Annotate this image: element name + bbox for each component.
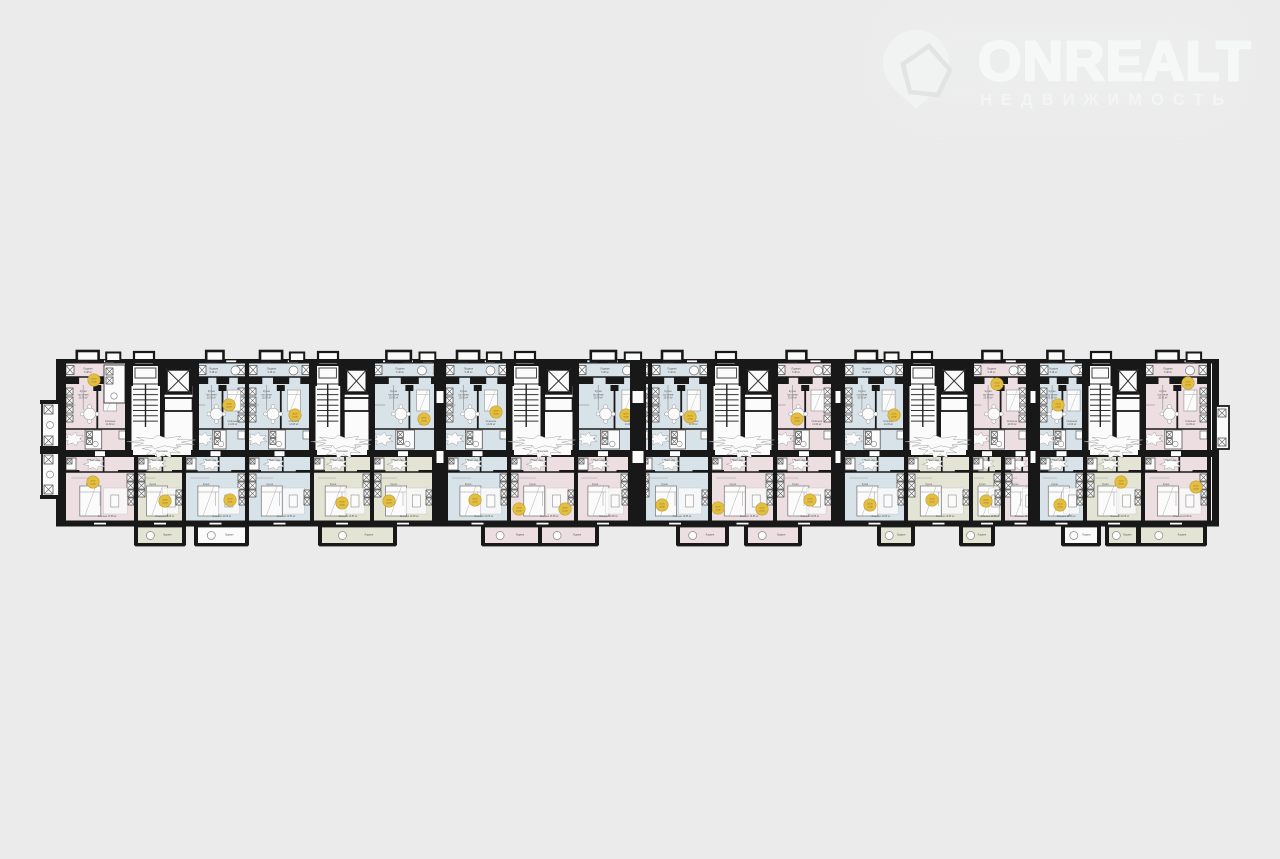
svg-text:Прихожая: Прихожая — [1165, 459, 1177, 462]
svg-text:24.25: 24.25 — [292, 413, 298, 415]
svg-text:Прихожая: Прихожая — [1052, 459, 1064, 462]
svg-text:24.36: 24.36 — [929, 502, 935, 504]
svg-text:Спальня 16.85 м²: Спальня 16.85 м² — [673, 515, 692, 518]
svg-text:Спальня 16.85 м²: Спальня 16.85 м² — [981, 515, 1000, 518]
svg-text:Лоджия: Лоджия — [464, 367, 474, 371]
svg-text:Кухня: Кухня — [862, 483, 869, 486]
svg-text:Прихожая: Прихожая — [1108, 450, 1120, 453]
svg-text:Прихожая: Прихожая — [933, 450, 945, 453]
svg-text:5.48 м²: 5.48 м² — [668, 371, 676, 374]
svg-text:Прихожая: Прихожая — [151, 459, 163, 462]
svg-text:Лоджия: Лоджия — [1082, 534, 1091, 537]
svg-text:Спальня 16.85 м²: Спальня 16.85 м² — [212, 515, 231, 518]
svg-text:14.09 м²: 14.09 м² — [1186, 423, 1195, 426]
svg-text:24.36: 24.36 — [715, 510, 721, 512]
svg-text:Спальня 16.85 м²: Спальня 16.85 м² — [540, 515, 559, 518]
svg-text:Спальня 16.85 м²: Спальня 16.85 м² — [339, 515, 358, 518]
svg-text:24.36: 24.36 — [659, 507, 665, 509]
svg-text:Прихожая: Прихожая — [467, 459, 479, 462]
svg-text:24.25: 24.25 — [1118, 480, 1124, 482]
svg-text:Кухня: Кухня — [529, 483, 536, 486]
svg-text:24.36: 24.36 — [226, 407, 232, 409]
svg-text:5.48 м²: 5.48 м² — [1050, 371, 1058, 374]
svg-text:Прихожая: Прихожая — [593, 459, 605, 462]
svg-text:24.36: 24.36 — [339, 505, 345, 507]
svg-text:24.36: 24.36 — [983, 503, 989, 505]
svg-text:Лоджия: Лоджия — [1123, 534, 1132, 537]
svg-text:24.25: 24.25 — [472, 498, 478, 500]
svg-text:Прихожая: Прихожая — [537, 450, 549, 453]
svg-text:5.48 м²: 5.48 м² — [1164, 371, 1172, 374]
svg-text:24.36: 24.36 — [794, 421, 800, 423]
svg-text:Лоджия: Лоджия — [897, 534, 906, 537]
svg-text:24.25: 24.25 — [562, 507, 568, 509]
svg-text:Прихожая: Прихожая — [156, 450, 168, 453]
svg-text:Лоджия: Лоджия — [1178, 534, 1187, 537]
svg-text:24.25: 24.25 — [759, 507, 765, 509]
svg-text:24.25: 24.25 — [929, 498, 935, 500]
svg-text:Прихожая: Прихожая — [732, 459, 744, 462]
svg-text:Прихожая: Прихожая — [1104, 459, 1116, 462]
svg-text:Прихожая: Прихожая — [928, 459, 940, 462]
svg-text:Лоджия: Лоджия — [667, 367, 677, 371]
svg-text:Спальня 16.85 м²: Спальня 16.85 м² — [871, 515, 890, 518]
svg-text:5.48 м²: 5.48 м² — [210, 371, 218, 374]
svg-text:Кухня: Кухня — [465, 483, 472, 486]
svg-text:24.25: 24.25 — [1185, 381, 1191, 383]
svg-text:Лоджия: Лоджия — [987, 367, 997, 371]
svg-text:24.25: 24.25 — [867, 503, 873, 505]
svg-text:24.25: 24.25 — [715, 506, 721, 508]
svg-text:ONREALT: ONREALT — [978, 29, 1252, 92]
svg-text:5.48 м²: 5.48 м² — [863, 371, 871, 374]
svg-text:24.25: 24.25 — [493, 410, 499, 412]
svg-text:24.25: 24.25 — [794, 417, 800, 419]
svg-text:14.09 м²: 14.09 м² — [289, 423, 298, 426]
svg-text:14.09 м²: 14.09 м² — [106, 423, 115, 426]
svg-text:14.09 м²: 14.09 м² — [884, 423, 893, 426]
svg-text:Спальня 16.85 м²: Спальня 16.85 м² — [1173, 515, 1192, 518]
svg-text:24.36: 24.36 — [1185, 385, 1191, 387]
svg-text:24.36: 24.36 — [472, 502, 478, 504]
svg-text:14.09 м²: 14.09 м² — [1067, 423, 1076, 426]
svg-text:24.25: 24.25 — [891, 413, 897, 415]
svg-text:Лоджия: Лоджия — [395, 367, 405, 371]
svg-text:Спальня 16.85 м²: Спальня 16.85 м² — [400, 515, 419, 518]
svg-text:24.36: 24.36 — [807, 502, 813, 504]
svg-text:Прихожая: Прихожая — [332, 459, 344, 462]
svg-text:24.36: 24.36 — [1057, 507, 1063, 509]
svg-text:24.25: 24.25 — [91, 378, 97, 380]
svg-text:Кухня: Кухня — [926, 483, 933, 486]
svg-text:Спальня 16.85 м²: Спальня 16.85 м² — [599, 515, 618, 518]
svg-text:5.48 м²: 5.48 м² — [601, 371, 609, 374]
svg-text:Лоджия: Лоджия — [706, 534, 715, 537]
svg-text:Спальня 16.85 м²: Спальня 16.85 м² — [936, 515, 955, 518]
svg-text:Спальня 16.85 м²: Спальня 16.85 м² — [1057, 515, 1076, 518]
svg-text:Прихожая: Прихожая — [205, 459, 217, 462]
svg-text:Кухня: Кухня — [792, 483, 799, 486]
svg-text:Лоджия: Лоджия — [267, 367, 277, 371]
svg-text:Лоджия: Лоджия — [83, 367, 93, 371]
svg-text:24.25: 24.25 — [659, 503, 665, 505]
svg-text:24.25: 24.25 — [339, 501, 345, 503]
svg-text:24.36: 24.36 — [386, 503, 392, 505]
svg-text:Кухня: Кухня — [592, 483, 599, 486]
svg-text:Кухня: Кухня — [661, 483, 668, 486]
svg-text:Прихожая: Прихожая — [392, 459, 404, 462]
svg-text:5.48 м²: 5.48 м² — [792, 371, 800, 374]
svg-text:24.25: 24.25 — [227, 498, 233, 500]
svg-text:24.36: 24.36 — [516, 511, 522, 513]
svg-text:Лоджия: Лоджия — [600, 367, 610, 371]
svg-text:5.48 м²: 5.48 м² — [84, 371, 92, 374]
svg-text:24.36: 24.36 — [687, 419, 693, 421]
svg-text:24.25: 24.25 — [1057, 503, 1063, 505]
svg-text:14.09 м²: 14.09 м² — [1007, 423, 1016, 426]
svg-text:Лоджия: Лоджия — [777, 534, 786, 537]
svg-text:Прихожая: Прихожая — [794, 459, 806, 462]
svg-text:14.09 м²: 14.09 м² — [486, 423, 495, 426]
svg-text:24.25: 24.25 — [90, 480, 96, 482]
svg-text:Лоджия: Лоджия — [791, 367, 801, 371]
svg-text:Лоджия: Лоджия — [163, 534, 172, 537]
svg-text:24.36: 24.36 — [227, 502, 233, 504]
svg-text:Лоджия: Лоджия — [978, 534, 987, 537]
svg-text:Прихожая: Прихожая — [532, 459, 544, 462]
svg-text:Прихожая: Прихожая — [269, 459, 281, 462]
svg-text:24.25: 24.25 — [226, 403, 232, 405]
svg-text:24.36: 24.36 — [162, 503, 168, 505]
svg-text:Лоджия: Лоджия — [365, 534, 374, 537]
svg-text:Лоджия: Лоджия — [1049, 367, 1059, 371]
svg-text:Кухня: Кухня — [1051, 483, 1058, 486]
svg-text:Спальня 16.85 м²: Спальня 16.85 м² — [800, 515, 819, 518]
svg-text:24.36: 24.36 — [421, 421, 427, 423]
svg-text:24.36: 24.36 — [91, 382, 97, 384]
svg-text:Кухня: Кухня — [330, 483, 337, 486]
svg-text:14.09 м²: 14.09 м² — [228, 423, 237, 426]
svg-text:24.25: 24.25 — [162, 499, 168, 501]
svg-text:14.09 м²: 14.09 м² — [812, 423, 821, 426]
svg-text:Прихожая: Прихожая — [737, 450, 749, 453]
svg-text:Лоджия: Лоджия — [516, 534, 525, 537]
svg-text:Кухня: Кухня — [203, 483, 210, 486]
svg-text:24.36: 24.36 — [493, 414, 499, 416]
svg-text:Прихожая: Прихожая — [664, 459, 676, 462]
svg-text:Кухня: Кухня — [1102, 483, 1109, 486]
svg-text:Лоджия: Лоджия — [573, 534, 582, 537]
svg-text:24.36: 24.36 — [1118, 484, 1124, 486]
svg-text:24.25: 24.25 — [807, 498, 813, 500]
svg-text:Прихожая: Прихожая — [336, 450, 348, 453]
svg-text:24.36: 24.36 — [994, 386, 1000, 388]
svg-text:Кухня: Кухня — [1012, 483, 1019, 486]
svg-text:Прихожая: Прихожая — [89, 459, 101, 462]
svg-text:24.25: 24.25 — [623, 413, 629, 415]
svg-text:24.36: 24.36 — [891, 417, 897, 419]
svg-text:5.48 м²: 5.48 м² — [465, 371, 473, 374]
svg-text:24.36: 24.36 — [867, 507, 873, 509]
svg-text:24.25: 24.25 — [386, 499, 392, 501]
svg-text:Лоджия: Лоджия — [862, 367, 872, 371]
svg-text:24.36: 24.36 — [1193, 489, 1199, 491]
svg-text:Кухня: Кухня — [1163, 483, 1170, 486]
svg-text:24.25: 24.25 — [516, 507, 522, 509]
svg-text:24.25: 24.25 — [687, 415, 693, 417]
svg-text:Прихожая: Прихожая — [864, 459, 876, 462]
svg-text:24.36: 24.36 — [623, 417, 629, 419]
svg-text:Спальня 16.85 м²: Спальня 16.85 м² — [277, 515, 296, 518]
svg-text:24.25: 24.25 — [421, 417, 427, 419]
svg-text:5.48 м²: 5.48 м² — [396, 371, 404, 374]
svg-text:24.25: 24.25 — [1055, 403, 1061, 405]
svg-text:24.36: 24.36 — [759, 511, 765, 513]
svg-text:Спальня 16.85 м²: Спальня 16.85 м² — [474, 515, 493, 518]
svg-text:5.48 м²: 5.48 м² — [268, 371, 276, 374]
svg-text:Кухня: Кухня — [979, 483, 986, 486]
svg-text:24.36: 24.36 — [90, 484, 96, 486]
svg-text:24.36: 24.36 — [292, 417, 298, 419]
svg-text:Кухня: Кухня — [150, 483, 157, 486]
svg-text:24.25: 24.25 — [1193, 485, 1199, 487]
svg-text:24.36: 24.36 — [562, 511, 568, 513]
svg-text:Кухня: Кухня — [267, 483, 274, 486]
svg-text:24.36: 24.36 — [1055, 407, 1061, 409]
svg-text:24.25: 24.25 — [994, 382, 1000, 384]
svg-text:Спальня 16.85 м²: Спальня 16.85 м² — [98, 515, 117, 518]
svg-text:14.09 м²: 14.09 м² — [689, 423, 698, 426]
svg-text:Спальня 16.85 м²: Спальня 16.85 м² — [1110, 515, 1129, 518]
svg-text:Лоджия: Лоджия — [1163, 367, 1173, 371]
svg-text:Кухня: Кухня — [390, 483, 397, 486]
svg-text:НЕДВИЖИМОСТЬ: НЕДВИЖИМОСТЬ — [980, 91, 1233, 109]
svg-text:Лоджия: Лоджия — [225, 534, 234, 537]
svg-text:Спальня 16.85 м²: Спальня 16.85 м² — [155, 515, 174, 518]
svg-text:24.25: 24.25 — [983, 499, 989, 501]
svg-text:Спальня 16.85 м²: Спальня 16.85 м² — [740, 515, 759, 518]
svg-text:Кухня: Кухня — [730, 483, 737, 486]
svg-text:Лоджия: Лоджия — [209, 367, 219, 371]
svg-text:5.48 м²: 5.48 м² — [988, 371, 996, 374]
